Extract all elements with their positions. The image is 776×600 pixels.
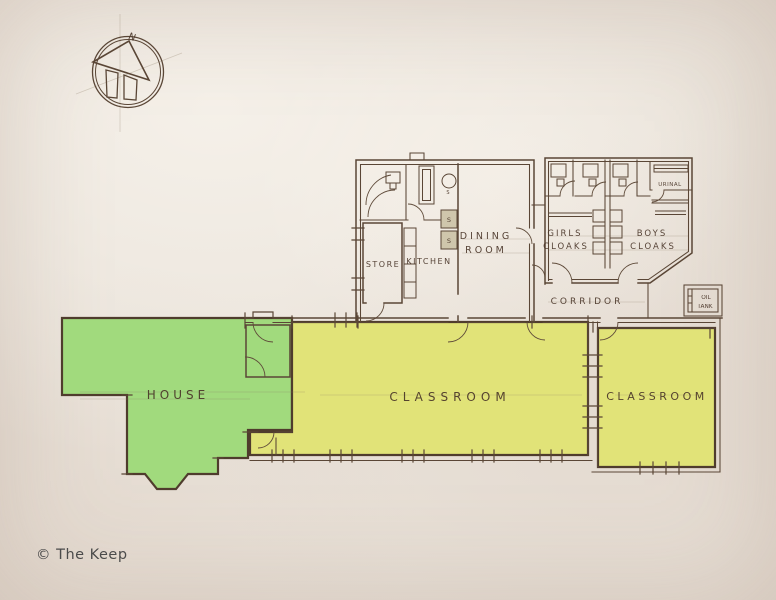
cistern-icon <box>551 164 566 177</box>
label-house: HOUSE <box>147 388 209 402</box>
scanned-floor-plan: { "compass": { "north_label": "N" }, "co… <box>0 0 776 600</box>
label-store: STORE <box>366 260 400 269</box>
oil-tank: OIL TANK <box>684 285 722 316</box>
compass-inner-circle <box>96 40 161 105</box>
label-urinal: URINAL <box>658 182 682 188</box>
basin-icon <box>593 242 605 254</box>
label-boys-line2: CLOAKS <box>630 242 676 252</box>
house-fill <box>62 318 292 489</box>
label-sink-1: S <box>447 216 451 224</box>
compass-rose: N <box>93 31 164 107</box>
cistern-icon <box>613 164 628 177</box>
label-sink-small: S <box>446 190 449 196</box>
kitchen-fixtures <box>386 166 457 298</box>
label-sink-2: S <box>447 237 451 245</box>
north-arrow <box>93 41 149 80</box>
floor-plan-drawing: N <box>0 0 776 600</box>
basin-icon <box>610 210 622 222</box>
oil-tank-label-line1: OIL <box>701 295 711 301</box>
basin-icon <box>593 210 605 222</box>
label-classroom-main: CLASSROOM <box>389 390 510 404</box>
label-dining-line2: ROOM <box>465 245 507 256</box>
classroom-main-fill <box>250 322 588 455</box>
label-dining-line1: DINING <box>460 231 513 242</box>
cistern-icon <box>583 164 598 177</box>
cloaks-fixtures <box>548 164 686 254</box>
compass-outer-circle <box>93 37 164 108</box>
label-girls-line2: CLOAKS <box>543 242 589 252</box>
boiler-icon <box>442 174 456 188</box>
label-boys-line1: BOYS <box>637 229 668 239</box>
copyright-watermark: © The Keep <box>36 547 128 563</box>
toilet-icon <box>386 172 400 183</box>
label-kitchen: KITCHEN <box>406 257 451 266</box>
label-girls-line1: GIRLS <box>547 229 582 239</box>
oil-tank-label-line2: TANK <box>696 304 712 310</box>
label-corridor: CORRIDOR <box>551 297 624 307</box>
label-classroom-small: CLASSROOM <box>606 390 708 403</box>
basin-icon <box>610 242 622 254</box>
